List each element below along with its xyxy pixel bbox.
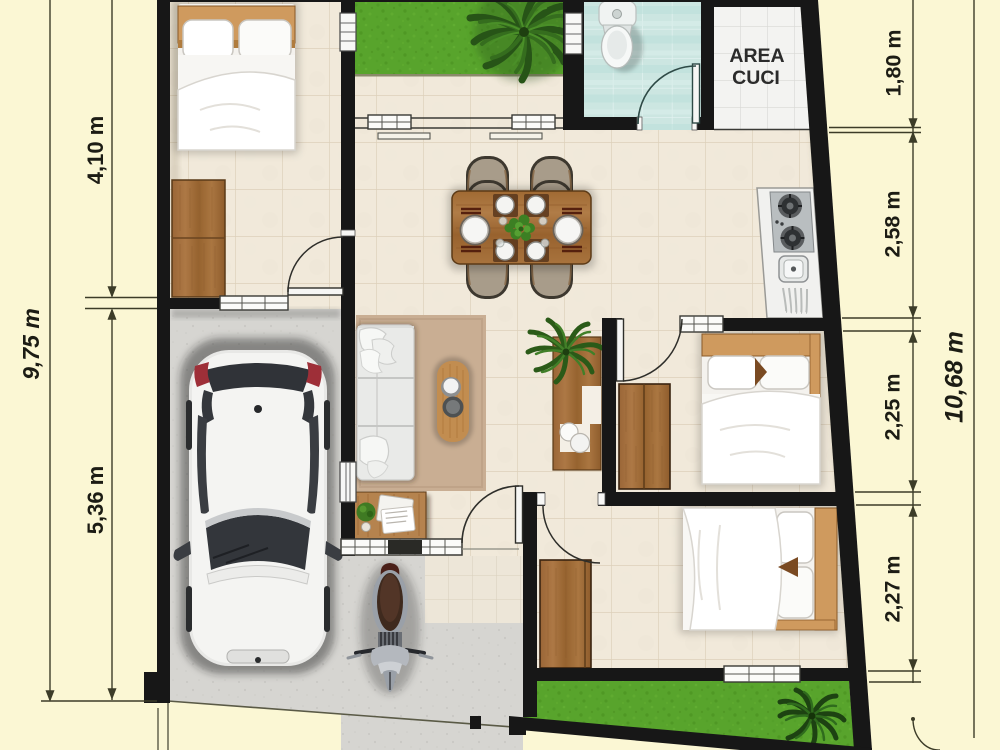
svg-text:CUCI: CUCI [732, 67, 780, 89]
svg-text:AREA: AREA [729, 45, 784, 67]
svg-text:9,75 m: 9,75 m [18, 308, 44, 380]
svg-text:5,36 m: 5,36 m [83, 466, 108, 535]
svg-text:2,58 m: 2,58 m [881, 191, 905, 258]
svg-text:4,10 m: 4,10 m [83, 116, 108, 185]
svg-text:2,27 m: 2,27 m [881, 556, 905, 623]
svg-text:2,25 m: 2,25 m [881, 374, 905, 441]
svg-text:10,68 m: 10,68 m [941, 331, 969, 423]
svg-text:1,80 m: 1,80 m [882, 30, 906, 97]
